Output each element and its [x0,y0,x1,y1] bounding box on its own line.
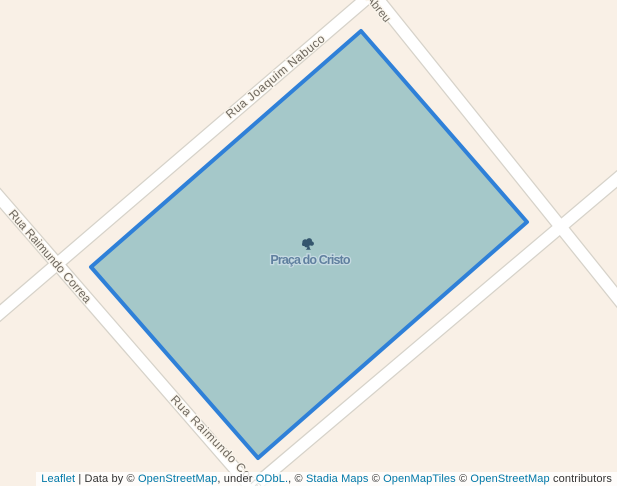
svg-text:Praça do Cristo: Praça do Cristo [270,253,350,267]
